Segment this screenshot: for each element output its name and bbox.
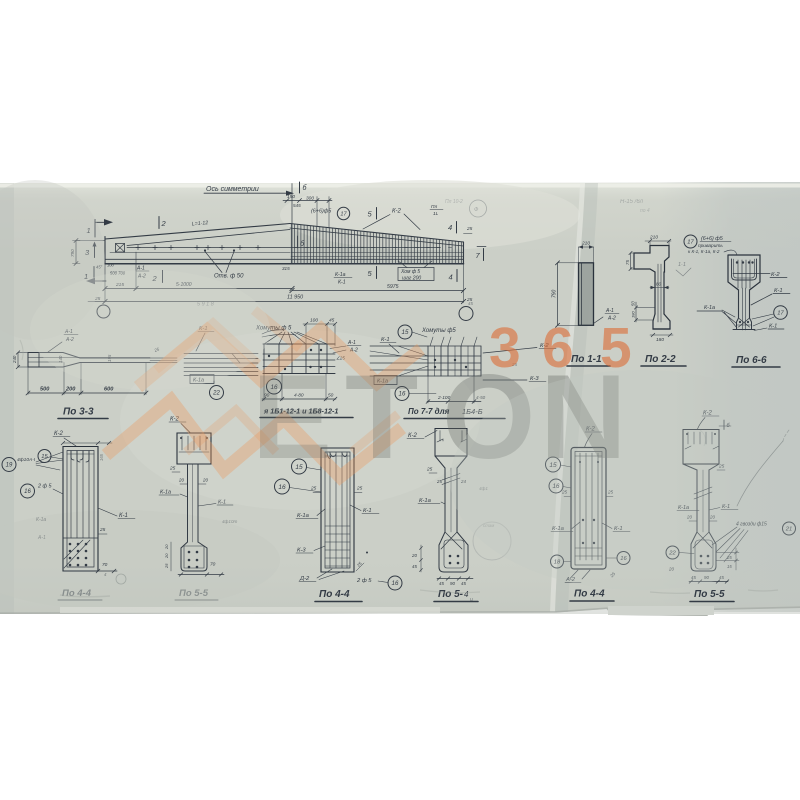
- svg-text:75: 75: [625, 260, 630, 265]
- svg-text:По 5-5: По 5-5: [694, 589, 725, 600]
- svg-text:210: 210: [649, 235, 658, 241]
- svg-text:К-1: К-1: [119, 513, 128, 519]
- svg-text:Хомуты ф5: Хомуты ф5: [421, 328, 456, 334]
- svg-text:25: 25: [356, 486, 363, 492]
- svg-text:К-2: К-2: [771, 272, 780, 278]
- svg-text:70: 70: [210, 562, 216, 568]
- svg-text:25: 25: [310, 486, 317, 492]
- svg-text:150: 150: [287, 194, 295, 200]
- svg-text:20: 20: [411, 553, 417, 558]
- svg-text:К-1: К-1: [218, 500, 226, 506]
- svg-text:шаг 200: шаг 200: [402, 276, 421, 282]
- svg-text:4: 4: [448, 223, 452, 232]
- svg-text:E: E: [252, 350, 332, 484]
- svg-text:500: 500: [40, 387, 50, 393]
- svg-text:к К-1, К-1а, К-2: к К-1, К-1а, К-2: [688, 249, 720, 254]
- svg-text:315: 315: [282, 266, 290, 271]
- svg-text:45: 45: [468, 301, 473, 306]
- svg-text:80: 80: [656, 282, 662, 287]
- svg-text:К-2: К-2: [392, 209, 402, 215]
- svg-text:6: 6: [542, 316, 574, 380]
- svg-text:20: 20: [164, 544, 169, 550]
- svg-text:200: 200: [65, 387, 76, 393]
- svg-text:3: 3: [489, 316, 521, 380]
- svg-text:15: 15: [402, 329, 409, 336]
- svg-text:по 4: по 4: [640, 208, 650, 214]
- svg-text:Д-2: Д-2: [299, 576, 310, 582]
- svg-text:45: 45: [412, 564, 417, 569]
- svg-text:25: 25: [164, 563, 169, 569]
- svg-text:По 3-3: По 3-3: [63, 407, 94, 418]
- svg-text:20: 20: [202, 478, 208, 483]
- svg-text:100: 100: [310, 318, 318, 324]
- svg-text:А-1: А-1: [347, 340, 356, 346]
- svg-text:17: 17: [340, 212, 347, 218]
- svg-text:По 5-: По 5-: [438, 589, 464, 600]
- svg-text:К-3: К-3: [297, 548, 306, 554]
- svg-text:ц: ц: [470, 597, 473, 603]
- svg-text:20: 20: [164, 553, 169, 559]
- svg-text:Ф: Ф: [474, 207, 479, 213]
- svg-text:19: 19: [6, 463, 13, 469]
- svg-text:5975: 5975: [387, 284, 399, 290]
- svg-text:К-1: К-1: [774, 288, 783, 294]
- svg-text:25: 25: [426, 467, 433, 473]
- svg-text:4: 4: [449, 273, 453, 282]
- svg-text:100: 100: [107, 263, 114, 268]
- svg-text:К-1а: К-1а: [36, 517, 46, 523]
- svg-text:15: 15: [41, 454, 48, 460]
- svg-text:Отв. ф 50: Отв. ф 50: [214, 274, 244, 280]
- svg-text:4ф10А-I: 4ф10А-I: [17, 457, 36, 463]
- svg-text:Пл 10-2: Пл 10-2: [445, 199, 463, 205]
- svg-text:2 ф 5: 2 ф 5: [356, 578, 372, 584]
- svg-text:50: 50: [631, 301, 636, 306]
- svg-text:4: 4: [464, 590, 469, 599]
- svg-text:25: 25: [99, 527, 106, 533]
- svg-text:17: 17: [687, 240, 694, 246]
- svg-text:11 950: 11 950: [287, 295, 303, 301]
- svg-text:К-1: К-1: [381, 337, 390, 343]
- svg-text:90: 90: [450, 581, 455, 586]
- svg-text:(6+6)ф5: (6+6)ф5: [311, 209, 332, 215]
- svg-text:45: 45: [439, 581, 444, 586]
- svg-text:К-1а: К-1а: [297, 513, 310, 519]
- svg-text:16: 16: [392, 580, 399, 587]
- svg-text:По 2-2: По 2-2: [645, 354, 676, 365]
- svg-text:К-1а: К-1а: [419, 498, 432, 504]
- svg-text:17: 17: [777, 311, 784, 317]
- svg-text:Ось симметрии: Ось симметрии: [206, 186, 259, 193]
- svg-text:70: 70: [102, 562, 108, 568]
- svg-text:545: 545: [293, 203, 301, 208]
- svg-text:К-1а: К-1а: [335, 272, 346, 278]
- svg-text:К-1а: К-1а: [160, 490, 171, 496]
- svg-text:25: 25: [169, 466, 176, 472]
- svg-text:К-1: К-1: [363, 508, 372, 514]
- svg-text:25: 25: [466, 226, 473, 232]
- svg-text:По 5-5: По 5-5: [179, 588, 209, 599]
- svg-text:К-1: К-1: [338, 280, 346, 286]
- svg-text:По 6-6: По 6-6: [736, 355, 767, 366]
- svg-text:300: 300: [306, 196, 314, 202]
- svg-text:К-1а: К-1а: [704, 305, 715, 311]
- svg-text:2: 2: [161, 219, 167, 228]
- svg-text:20: 20: [178, 478, 184, 483]
- svg-text:1·1: 1·1: [678, 262, 686, 268]
- svg-text:2 ф 5: 2 ф 5: [37, 484, 52, 490]
- svg-text:16: 16: [24, 489, 31, 495]
- svg-text:240: 240: [12, 355, 17, 364]
- svg-text:1L: 1L: [433, 211, 439, 217]
- svg-text:Пл: Пл: [431, 204, 437, 210]
- svg-text:(6+6) ф5: (6+6) ф5: [701, 236, 724, 242]
- svg-text:А-1: А-1: [605, 308, 614, 314]
- svg-text:4ф10т: 4ф10т: [222, 519, 238, 524]
- svg-text:180: 180: [656, 337, 664, 343]
- svg-text:Н-15 /6л: Н-15 /6л: [620, 199, 644, 205]
- svg-text:165: 165: [99, 453, 104, 461]
- svg-text:К-1: К-1: [769, 324, 777, 330]
- svg-text:T: T: [345, 350, 418, 484]
- svg-text:По 4-4: По 4-4: [319, 589, 350, 600]
- svg-text:600: 600: [104, 387, 114, 393]
- svg-text:К-2: К-2: [54, 431, 64, 437]
- svg-text:45: 45: [461, 581, 466, 586]
- svg-text:790: 790: [552, 289, 558, 298]
- svg-text:Хом ф 5: Хом ф 5: [400, 269, 420, 275]
- svg-text:22: 22: [212, 391, 220, 397]
- svg-text:16: 16: [278, 484, 286, 491]
- svg-text:По 4-4: По 4-4: [574, 589, 605, 600]
- svg-text:45: 45: [329, 318, 335, 324]
- svg-text:А-1: А-1: [37, 535, 46, 541]
